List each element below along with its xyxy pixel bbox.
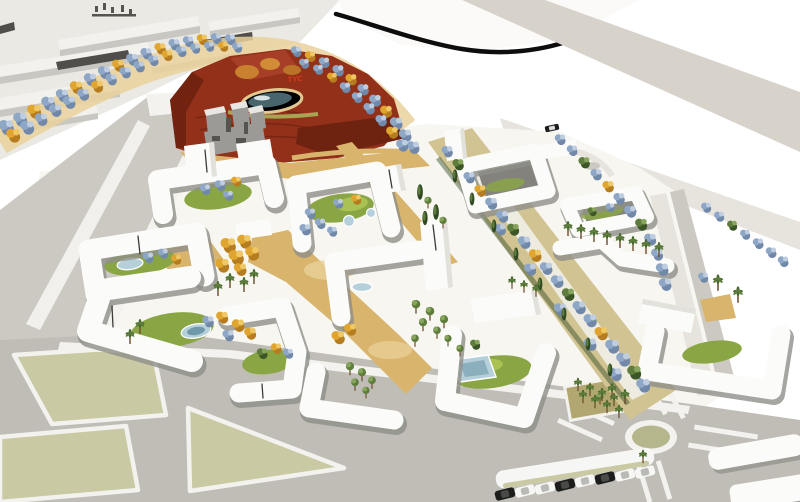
park-label: TYC bbox=[287, 75, 303, 84]
housing-block-c bbox=[463, 151, 550, 210]
roundabout-island bbox=[632, 426, 670, 449]
pond-glint bbox=[254, 96, 270, 101]
courtyard-pond bbox=[344, 216, 355, 227]
development-parcel bbox=[0, 426, 138, 502]
block-slab bbox=[236, 139, 274, 167]
courtyard-pond bbox=[367, 209, 376, 218]
masterplan-render: TYC bbox=[0, 0, 800, 502]
sand-patch bbox=[368, 341, 412, 359]
roundabout bbox=[625, 420, 677, 454]
courtyard-pond bbox=[352, 283, 372, 292]
